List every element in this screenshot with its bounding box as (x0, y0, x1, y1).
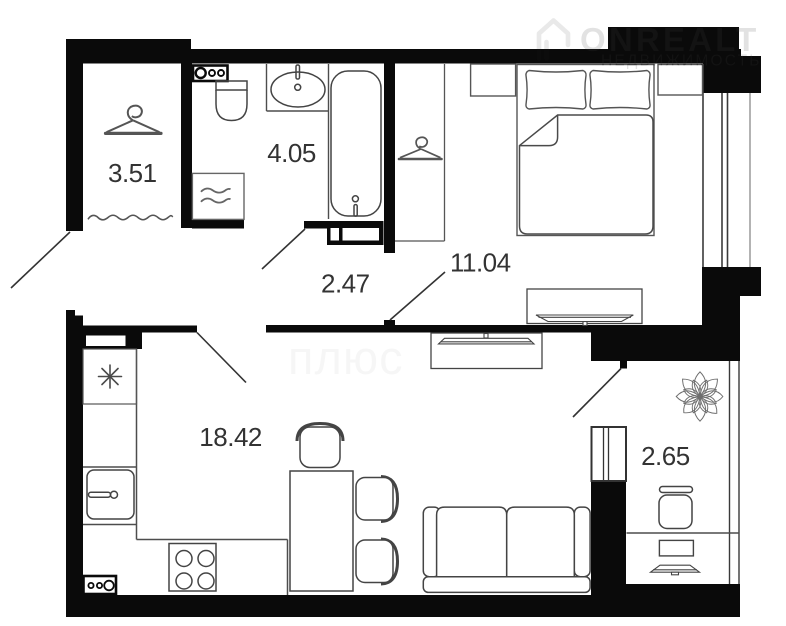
svg-text:2.65: 2.65 (641, 441, 690, 471)
svg-text:11.04: 11.04 (450, 248, 511, 278)
svg-text:2.47: 2.47 (321, 269, 370, 299)
svg-text:плюс: плюс (288, 331, 404, 384)
svg-text:3.51: 3.51 (108, 158, 157, 188)
svg-text:4.05: 4.05 (267, 138, 316, 168)
svg-text:НЕДВИЖИМОСТЬ: НЕДВИЖИМОСТЬ (601, 53, 762, 70)
svg-text:18.42: 18.42 (199, 422, 262, 452)
